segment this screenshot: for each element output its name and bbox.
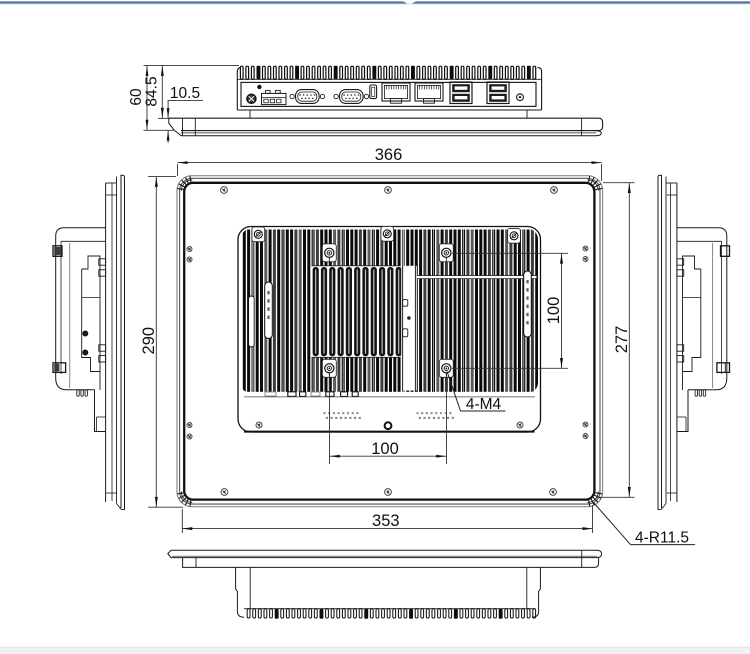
svg-text:353: 353 [372,512,400,530]
svg-text:277: 277 [613,326,631,354]
svg-text:84.5: 84.5 [143,76,160,106]
svg-text:4-R11.5: 4-R11.5 [635,530,689,547]
svg-text:290: 290 [140,327,158,355]
svg-text:100: 100 [371,440,399,458]
svg-text:60: 60 [128,88,145,106]
svg-text:4-M4: 4-M4 [466,396,502,413]
svg-text:366: 366 [375,146,403,164]
svg-text:10.5: 10.5 [170,85,200,102]
svg-text:100: 100 [545,297,563,325]
